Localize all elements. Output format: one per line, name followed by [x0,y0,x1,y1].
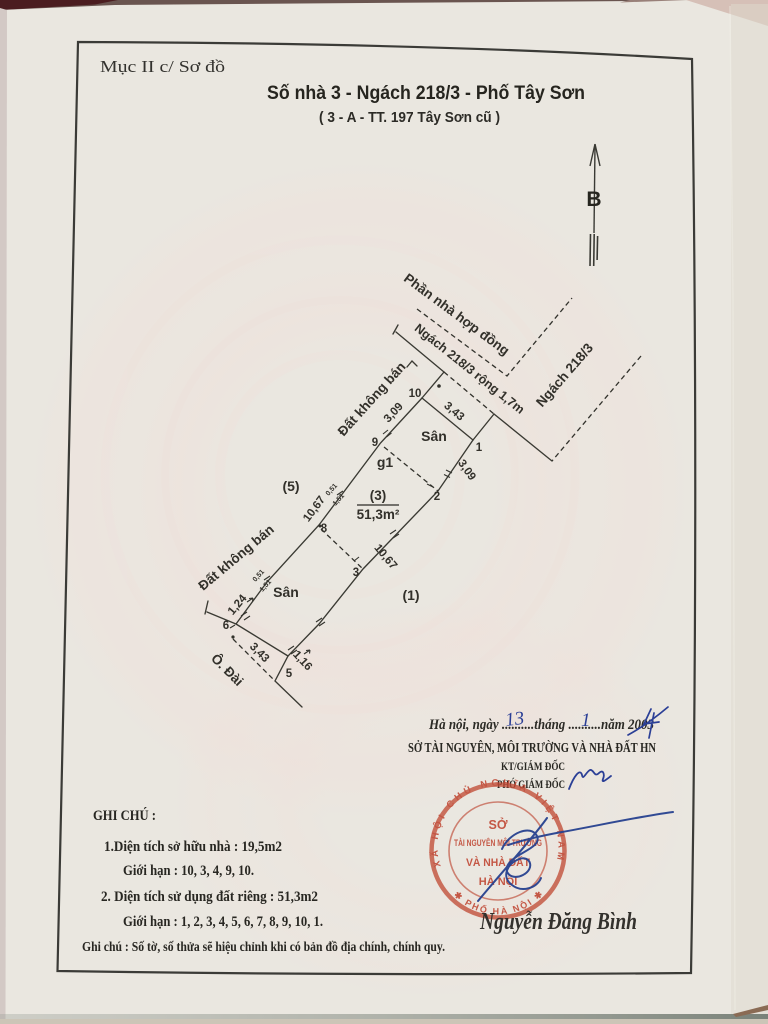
svg-text:2: 2 [434,491,440,503]
svg-text:1: 1 [581,710,591,731]
svg-text:9: 9 [372,437,378,449]
svg-text:( 3 - A - TT. 197 Tây Sơn cũ ): ( 3 - A - TT. 197 Tây Sơn cũ ) [319,110,500,126]
svg-text:51,3m²: 51,3m² [357,507,400,522]
svg-text:GHI CHÚ :: GHI CHÚ : [93,807,156,824]
svg-text:1: 1 [476,442,483,454]
svg-text:13: 13 [504,708,525,731]
svg-text:Giới hạn : 1, 2, 3, 4, 5, 6, 7: Giới hạn : 1, 2, 3, 4, 5, 6, 7, 8, 9, 10… [123,914,323,930]
svg-text:8: 8 [321,523,328,535]
svg-text:6: 6 [223,620,229,632]
svg-text:Hà nội, ngày ..........tháng .: Hà nội, ngày ..........tháng ..........n… [428,717,654,733]
svg-text:Mục II c/ Sơ đồ: Mục II c/ Sơ đồ [100,57,225,76]
svg-text:Sân: Sân [273,584,299,600]
svg-text:(5): (5) [282,478,299,494]
svg-text:Nguyễn Đăng Bình: Nguyễn Đăng Bình [479,909,637,935]
svg-text:Giới hạn : 10, 3, 4, 9, 10.: Giới hạn : 10, 3, 4, 9, 10. [123,863,254,879]
svg-text:g1: g1 [377,454,394,470]
svg-text:1.Diện tích sở hữu nhà : 19,: 1.Diện tích sở hữu nhà : 19,5m2 [104,839,282,855]
svg-text:B: B [586,188,601,211]
svg-text:10: 10 [409,388,422,400]
svg-text:3: 3 [353,567,359,579]
svg-text:Ghi chú : Số tờ, số thửa sẽ hi: Ghi chú : Số tờ, số thửa sẽ hiệu chỉnh k… [82,939,445,954]
svg-text:(3): (3) [370,488,387,503]
svg-text:SỞ: SỞ [488,817,507,832]
svg-text:2. Diện tích sử dụng đất riêng: 2. Diện tích sử dụng đất riêng : 51,3m2 [101,889,318,905]
svg-text:KT/GIÁM ĐỐC: KT/GIÁM ĐỐC [501,758,565,773]
svg-text:(1): (1) [402,587,419,603]
svg-text:Số nhà 3 - Ngách 218/3 - Phố T: Số nhà 3 - Ngách 218/3 - Phố Tây Sơn [267,82,585,104]
svg-text:Sân: Sân [421,428,447,444]
svg-text:SỞ TÀI NGUYÊN, MÔI TRƯỜNG VÀ N: SỞ TÀI NGUYÊN, MÔI TRƯỜNG VÀ NHÀ ĐẤT HN [408,739,656,756]
svg-text:5: 5 [286,668,293,680]
